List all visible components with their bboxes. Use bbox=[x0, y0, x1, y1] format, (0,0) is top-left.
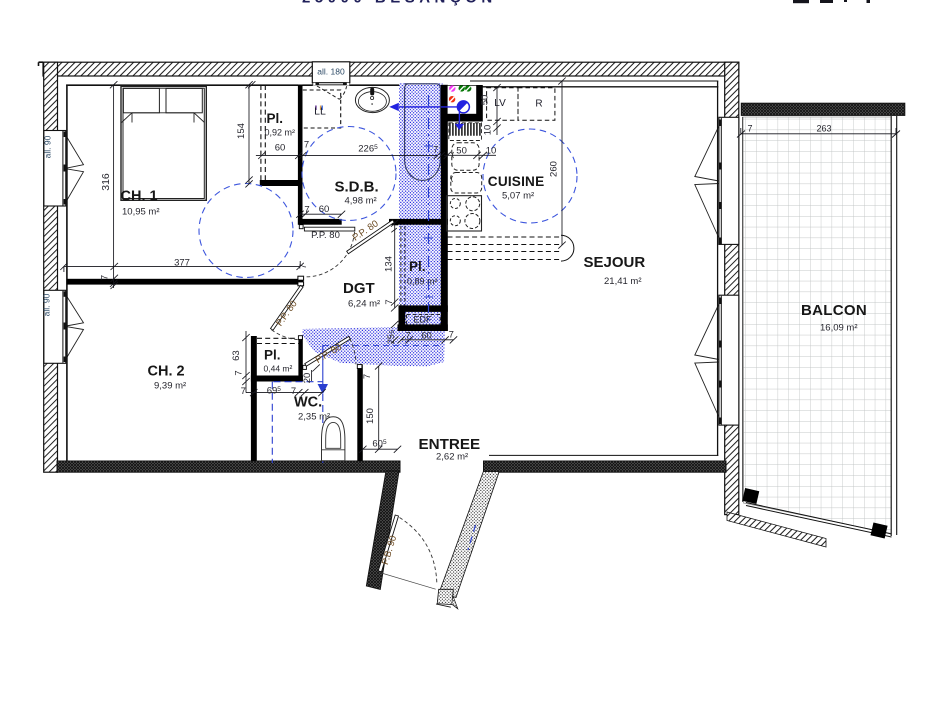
svg-text:7: 7 bbox=[405, 331, 410, 342]
svg-text:all. 90: all. 90 bbox=[42, 293, 52, 316]
svg-text:50: 50 bbox=[456, 146, 467, 157]
svg-text:CUISINE: CUISINE bbox=[488, 174, 545, 189]
svg-text:5,07 m²: 5,07 m² bbox=[502, 191, 534, 202]
svg-text:7: 7 bbox=[362, 374, 373, 379]
svg-text:7: 7 bbox=[304, 140, 309, 151]
svg-text:EDF: EDF bbox=[414, 315, 433, 325]
svg-text:0,92 m²: 0,92 m² bbox=[265, 128, 296, 138]
svg-text:10,95 m²: 10,95 m² bbox=[122, 207, 160, 218]
svg-text:316: 316 bbox=[100, 173, 112, 191]
svg-text:0,89 m²: 0,89 m² bbox=[407, 277, 438, 287]
svg-text:25000 BESANÇON: 25000 BESANÇON bbox=[302, 0, 497, 7]
svg-text:all. 180: all. 180 bbox=[317, 67, 345, 77]
svg-text:4,98 m²: 4,98 m² bbox=[345, 196, 377, 207]
svg-text:154: 154 bbox=[236, 123, 247, 139]
svg-text:ENTREE: ENTREE bbox=[419, 436, 481, 453]
svg-text:CH. 1: CH. 1 bbox=[121, 189, 158, 205]
svg-text:7: 7 bbox=[241, 386, 246, 397]
svg-text:P.P. 80: P.P. 80 bbox=[311, 230, 340, 241]
svg-text:LL: LL bbox=[314, 106, 326, 118]
svg-text:60: 60 bbox=[421, 331, 432, 342]
svg-text:150: 150 bbox=[365, 408, 376, 424]
svg-text:2,62 m²: 2,62 m² bbox=[436, 452, 468, 463]
svg-text:60: 60 bbox=[275, 143, 286, 154]
svg-text:7: 7 bbox=[304, 205, 309, 216]
svg-text:134: 134 bbox=[384, 256, 395, 272]
svg-text:260: 260 bbox=[549, 161, 560, 177]
svg-text:60: 60 bbox=[319, 204, 330, 215]
svg-text:7: 7 bbox=[449, 330, 454, 341]
svg-text:63: 63 bbox=[231, 350, 242, 361]
svg-text:20: 20 bbox=[302, 373, 313, 384]
svg-text:Pl.: Pl. bbox=[409, 259, 426, 274]
svg-text:7: 7 bbox=[298, 264, 309, 269]
svg-text:CH. 2: CH. 2 bbox=[148, 364, 185, 380]
svg-text:263: 263 bbox=[816, 124, 831, 134]
svg-text:7: 7 bbox=[100, 275, 111, 280]
svg-text:WC.: WC. bbox=[294, 395, 322, 411]
svg-text:BALCON: BALCON bbox=[801, 302, 867, 319]
svg-text:377: 377 bbox=[174, 258, 190, 269]
svg-text:S.D.B.: S.D.B. bbox=[335, 178, 379, 195]
svg-text:7: 7 bbox=[433, 145, 438, 155]
svg-text:2,35 m²: 2,35 m² bbox=[298, 412, 330, 423]
svg-text:Pl.: Pl. bbox=[264, 348, 281, 363]
svg-text:0,44 m²: 0,44 m² bbox=[264, 364, 293, 374]
svg-text:10: 10 bbox=[486, 146, 497, 157]
svg-text:7: 7 bbox=[234, 370, 245, 375]
svg-text:16,09 m²: 16,09 m² bbox=[820, 323, 858, 334]
svg-text:7: 7 bbox=[748, 124, 753, 134]
svg-text:LV: LV bbox=[494, 98, 506, 109]
svg-text:DGT: DGT bbox=[343, 280, 375, 297]
svg-text:SEJOUR: SEJOUR bbox=[584, 254, 646, 271]
svg-text:7: 7 bbox=[384, 299, 395, 304]
svg-text:50: 50 bbox=[480, 95, 491, 106]
svg-text:10: 10 bbox=[483, 125, 494, 136]
svg-text:all. 90: all. 90 bbox=[43, 135, 53, 158]
svg-text:Pl.: Pl. bbox=[267, 111, 284, 126]
svg-text:6,24 m²: 6,24 m² bbox=[348, 299, 380, 310]
svg-text:R: R bbox=[535, 99, 542, 110]
svg-text:9,39 m²: 9,39 m² bbox=[154, 381, 186, 392]
svg-text:21,41 m²: 21,41 m² bbox=[604, 276, 642, 287]
